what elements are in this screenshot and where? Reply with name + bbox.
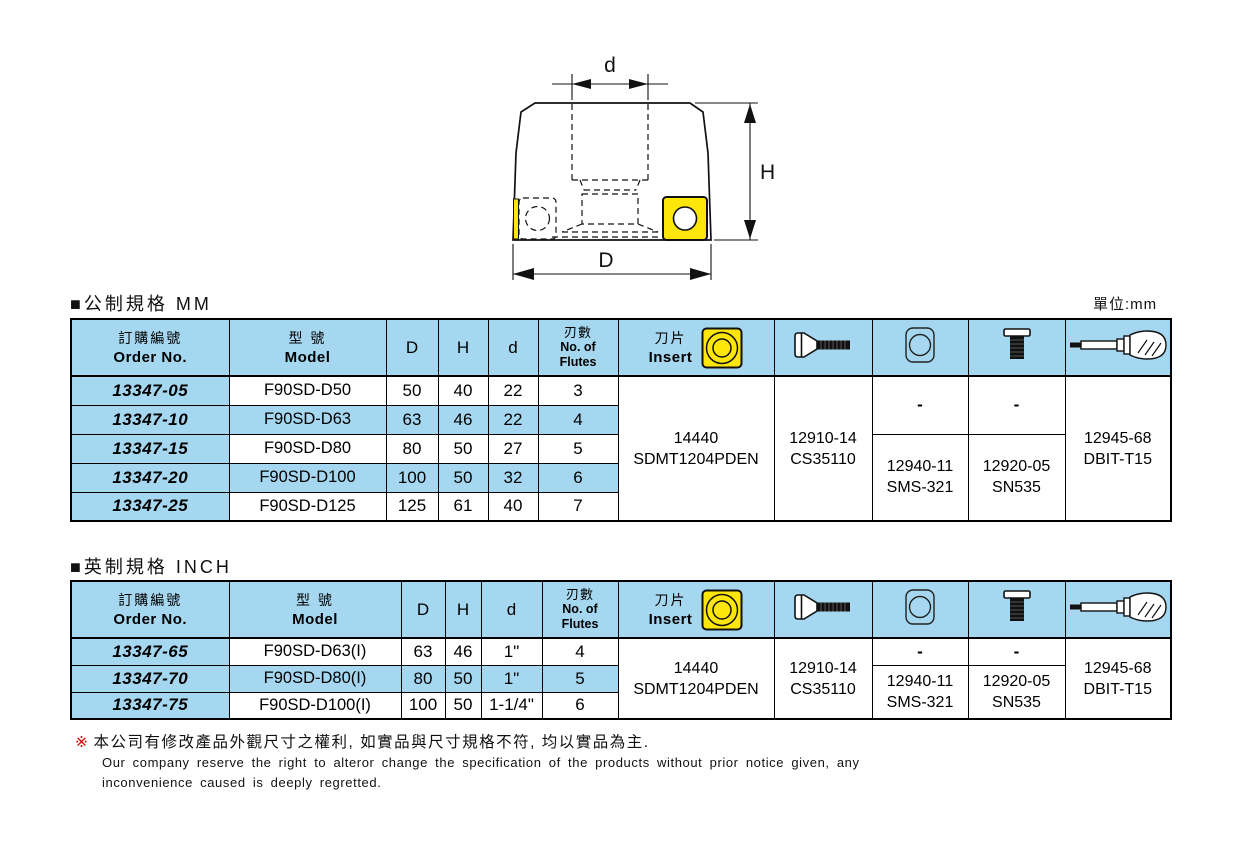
H-cell: 50 — [438, 434, 488, 463]
screw-header — [774, 581, 872, 638]
wrench-part-cell: 12945-68DBIT-T15 — [1065, 638, 1171, 719]
clamp-screw-header — [968, 581, 1065, 638]
footnote-marker: ※ — [75, 734, 90, 751]
model-cell: F90SD-D80 — [229, 434, 386, 463]
clamp-screw-header — [968, 319, 1065, 376]
d-cell: 22 — [488, 405, 538, 434]
D-cell: 63 — [386, 405, 438, 434]
flutes-cell: 6 — [542, 692, 618, 719]
order-cell: 13347-10 — [71, 405, 229, 434]
metric-header-row: 訂購編號 Order No. 型 號 Model D H d 刃數 No. of… — [71, 319, 1171, 376]
wrench-header — [1065, 319, 1171, 376]
shim-icon — [904, 588, 936, 626]
col-H-header: H — [445, 581, 481, 638]
insert-part-cell: 14440SDMT1204PDEN — [618, 638, 774, 719]
order-cell: 13347-25 — [71, 492, 229, 521]
table-row: 13347-65 F90SD-D63(I) 63 46 1" 4 14440SD… — [71, 638, 1171, 665]
dim-label-d: d — [604, 54, 616, 77]
clamp-screw-icon — [998, 588, 1036, 626]
screw-part-cell: 12910-14CS35110 — [774, 376, 872, 521]
unit-label: 單位:mm — [1093, 293, 1157, 314]
flutes-cell: 4 — [538, 405, 618, 434]
order-no-header: 訂購編號 Order No. — [71, 581, 229, 638]
model-cell: F90SD-D63(I) — [229, 638, 401, 665]
model-header: 型 號 Model — [229, 581, 401, 638]
right-insert-hole — [674, 207, 697, 230]
clamp-part-cell: 12920-05SN535 — [968, 665, 1065, 719]
col-D-header: D — [401, 581, 445, 638]
countersunk-screw-icon — [791, 592, 855, 622]
D-cell: 80 — [401, 665, 445, 692]
metric-section-title: ■公制規格 MM — [70, 290, 212, 316]
left-insert — [519, 198, 556, 239]
D-cell: 125 — [386, 492, 438, 521]
order-cell: 13347-05 — [71, 376, 229, 405]
D-cell: 63 — [401, 638, 445, 665]
flutes-cell: 5 — [538, 434, 618, 463]
footnote-chinese: ※本公司有修改產品外觀尺寸之權利, 如實品與尺寸規格不符, 均以實品為主. — [75, 732, 1195, 753]
order-cell: 13347-15 — [71, 434, 229, 463]
countersunk-screw-icon — [791, 330, 855, 360]
metric-spec-table: 訂購編號 Order No. 型 號 Model D H d 刃數 No. of… — [70, 318, 1172, 522]
shim-header — [872, 319, 968, 376]
col-D-header: D — [386, 319, 438, 376]
model-cell: F90SD-D63 — [229, 405, 386, 434]
table-row: 13347-05 F90SD-D50 50 40 22 3 14440SDMT1… — [71, 376, 1171, 405]
flutes-cell: 3 — [538, 376, 618, 405]
model-header: 型 號 Model — [229, 319, 386, 376]
d-cell: 1-1/4" — [481, 692, 542, 719]
D-cell: 50 — [386, 376, 438, 405]
H-cell: 46 — [445, 638, 481, 665]
wrench-header — [1065, 581, 1171, 638]
H-cell: 50 — [438, 463, 488, 492]
H-cell: 46 — [438, 405, 488, 434]
insert-part-cell: 14440SDMT1204PDEN — [618, 376, 774, 521]
model-cell: F90SD-D80(I) — [229, 665, 401, 692]
face-mill-diagram: d H — [492, 48, 784, 293]
insert-icon — [701, 327, 743, 369]
driver-icon — [1068, 326, 1168, 364]
clamp-part-cell: 12920-05SN535 — [968, 434, 1065, 521]
order-cell: 13347-20 — [71, 463, 229, 492]
shim-icon — [904, 326, 936, 364]
col-H-header: H — [438, 319, 488, 376]
insert-header: 刀片 Insert — [618, 319, 774, 376]
catalog-page: d H — [0, 0, 1240, 841]
col-d-header: d — [488, 319, 538, 376]
d-cell: 1" — [481, 665, 542, 692]
model-cell: F90SD-D125 — [229, 492, 386, 521]
model-cell: F90SD-D100 — [229, 463, 386, 492]
inch-spec-table: 訂購編號 Order No. 型 號 Model D H d 刃數 No. of… — [70, 580, 1172, 720]
H-cell: 50 — [445, 665, 481, 692]
D-cell: 100 — [386, 463, 438, 492]
order-cell: 13347-70 — [71, 665, 229, 692]
order-cell: 13347-65 — [71, 638, 229, 665]
screw-part-cell: 12910-14CS35110 — [774, 638, 872, 719]
shim-part-cell: 12940-11SMS-321 — [872, 434, 968, 521]
flutes-header: 刃數 No. of Flutes — [538, 319, 618, 376]
d-cell: 1" — [481, 638, 542, 665]
d-cell: 32 — [488, 463, 538, 492]
left-insert-edge — [514, 199, 519, 239]
shim-blank-cell: - — [872, 638, 968, 665]
d-cell: 27 — [488, 434, 538, 463]
shim-header — [872, 581, 968, 638]
model-cell: F90SD-D100(I) — [229, 692, 401, 719]
flutes-cell: 5 — [542, 665, 618, 692]
col-d-header: d — [481, 581, 542, 638]
H-cell: 40 — [438, 376, 488, 405]
shim-part-cell: 12940-11SMS-321 — [872, 665, 968, 719]
flutes-header: 刃數 No. of Flutes — [542, 581, 618, 638]
footnote-english-line1: Our company reserve the right to alteror… — [102, 753, 1195, 773]
dim-label-D: D — [598, 249, 613, 272]
flutes-cell: 4 — [542, 638, 618, 665]
insert-icon — [701, 589, 743, 631]
model-cell: F90SD-D50 — [229, 376, 386, 405]
D-cell: 80 — [386, 434, 438, 463]
footnote-english-line2: inconvenience caused is deeply regretted… — [102, 773, 1195, 793]
wrench-part-cell: 12945-68DBIT-T15 — [1065, 376, 1171, 521]
D-cell: 100 — [401, 692, 445, 719]
flutes-cell: 6 — [538, 463, 618, 492]
driver-icon — [1068, 588, 1168, 626]
d-cell: 22 — [488, 376, 538, 405]
d-cell: 40 — [488, 492, 538, 521]
inch-section-title: ■英制規格 INCH — [70, 553, 232, 579]
footnote: ※本公司有修改產品外觀尺寸之權利, 如實品與尺寸規格不符, 均以實品為主. Ou… — [75, 732, 1195, 793]
clamp-blank-cell: - — [968, 376, 1065, 434]
inch-header-row: 訂購編號 Order No. 型 號 Model D H d 刃數 No. of… — [71, 581, 1171, 638]
shim-blank-cell: - — [872, 376, 968, 434]
insert-header: 刀片 Insert — [618, 581, 774, 638]
order-cell: 13347-75 — [71, 692, 229, 719]
flutes-cell: 7 — [538, 492, 618, 521]
H-cell: 50 — [445, 692, 481, 719]
screw-header — [774, 319, 872, 376]
order-no-header: 訂購編號 Order No. — [71, 319, 229, 376]
clamp-screw-icon — [998, 326, 1036, 364]
H-cell: 61 — [438, 492, 488, 521]
dim-label-H: H — [760, 161, 775, 184]
clamp-blank-cell: - — [968, 638, 1065, 665]
